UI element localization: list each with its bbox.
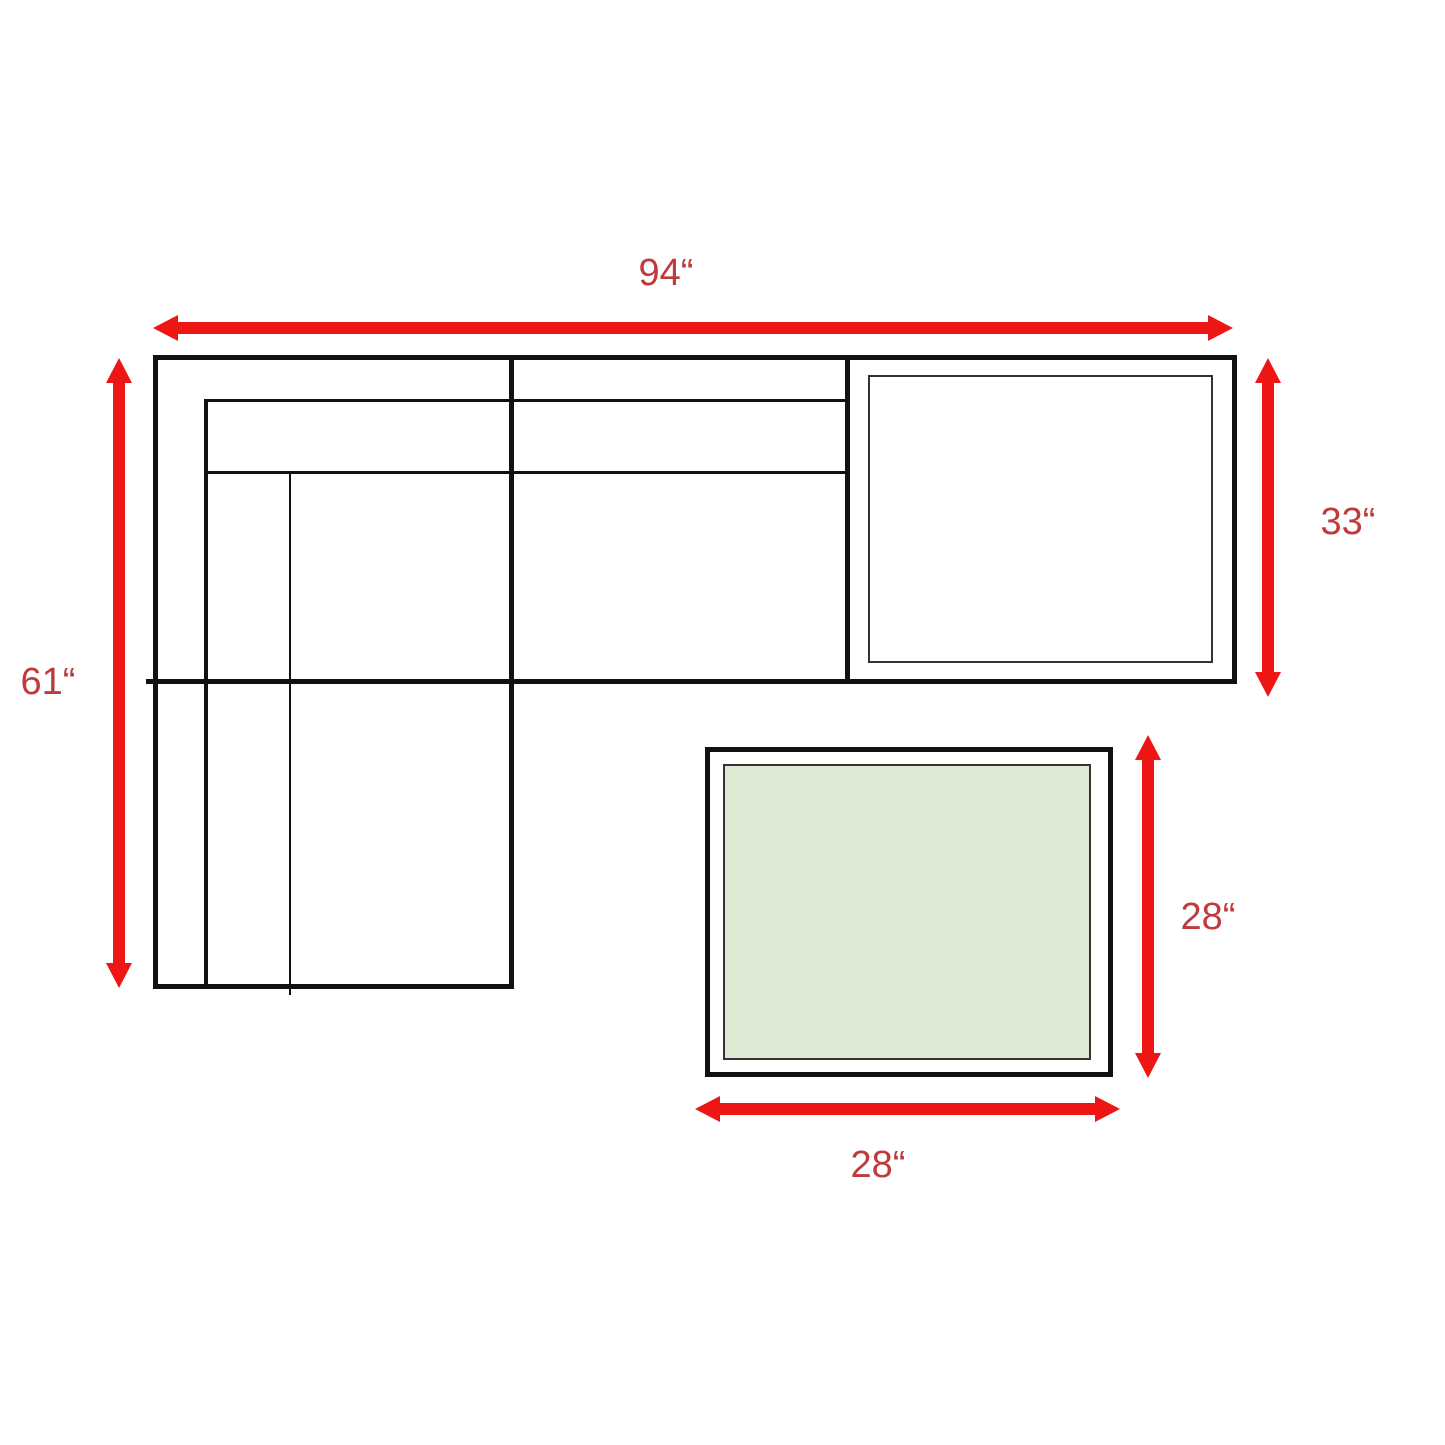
corner-section-cushion (868, 375, 1213, 663)
arrow-right-head-icon (1095, 1096, 1120, 1122)
arrow-shaft (113, 378, 125, 968)
sofa-section-divider (509, 355, 514, 989)
table-width-label: 28“ (826, 1145, 930, 1187)
arrow-down-head-icon (106, 963, 132, 988)
sofa-cushion-front-edge (205, 471, 847, 474)
table-depth-label: 28“ (1156, 897, 1260, 939)
sofa-depth-arrow (106, 358, 132, 988)
arrow-shaft (173, 322, 1213, 334)
sofa-width-arrow (153, 315, 1233, 341)
sofa-left-edge (153, 355, 158, 989)
sofa-back-inner-edge (205, 399, 847, 402)
arrow-down-head-icon (1135, 1053, 1161, 1078)
arrow-shaft (715, 1103, 1100, 1115)
table-width-arrow (695, 1096, 1120, 1122)
arrow-shaft (1142, 755, 1154, 1058)
sofa-width-label: 94“ (601, 253, 731, 295)
arrow-shaft (1262, 378, 1274, 677)
sofa-arm-inner-edge (204, 399, 208, 988)
arrow-right-head-icon (1208, 315, 1233, 341)
end-table-surface (723, 764, 1091, 1060)
corner-depth-arrow (1255, 358, 1281, 697)
sofa-depth-label: 61“ (6, 662, 90, 704)
sofa-top-edge (153, 355, 853, 360)
chaise-cushion-divider (289, 471, 291, 995)
arrow-down-head-icon (1255, 672, 1281, 697)
sofa-seat-front-edge (146, 679, 849, 684)
dimension-diagram: 94“ 61“ 33“ 28“ 28“ (0, 0, 1445, 1445)
corner-depth-label: 33“ (1296, 502, 1400, 544)
